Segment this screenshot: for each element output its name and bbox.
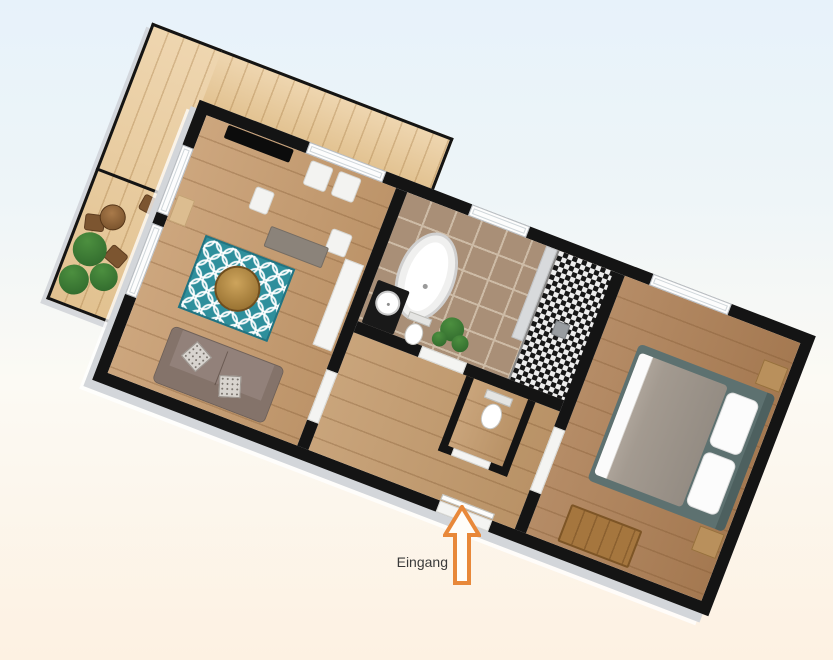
entrance-arrow-icon bbox=[443, 505, 481, 585]
bathtub-drain bbox=[422, 283, 428, 289]
floor-plan-canvas: Eingang bbox=[0, 0, 833, 660]
throw-pillow bbox=[218, 375, 241, 398]
entrance-label: Eingang bbox=[392, 554, 448, 570]
